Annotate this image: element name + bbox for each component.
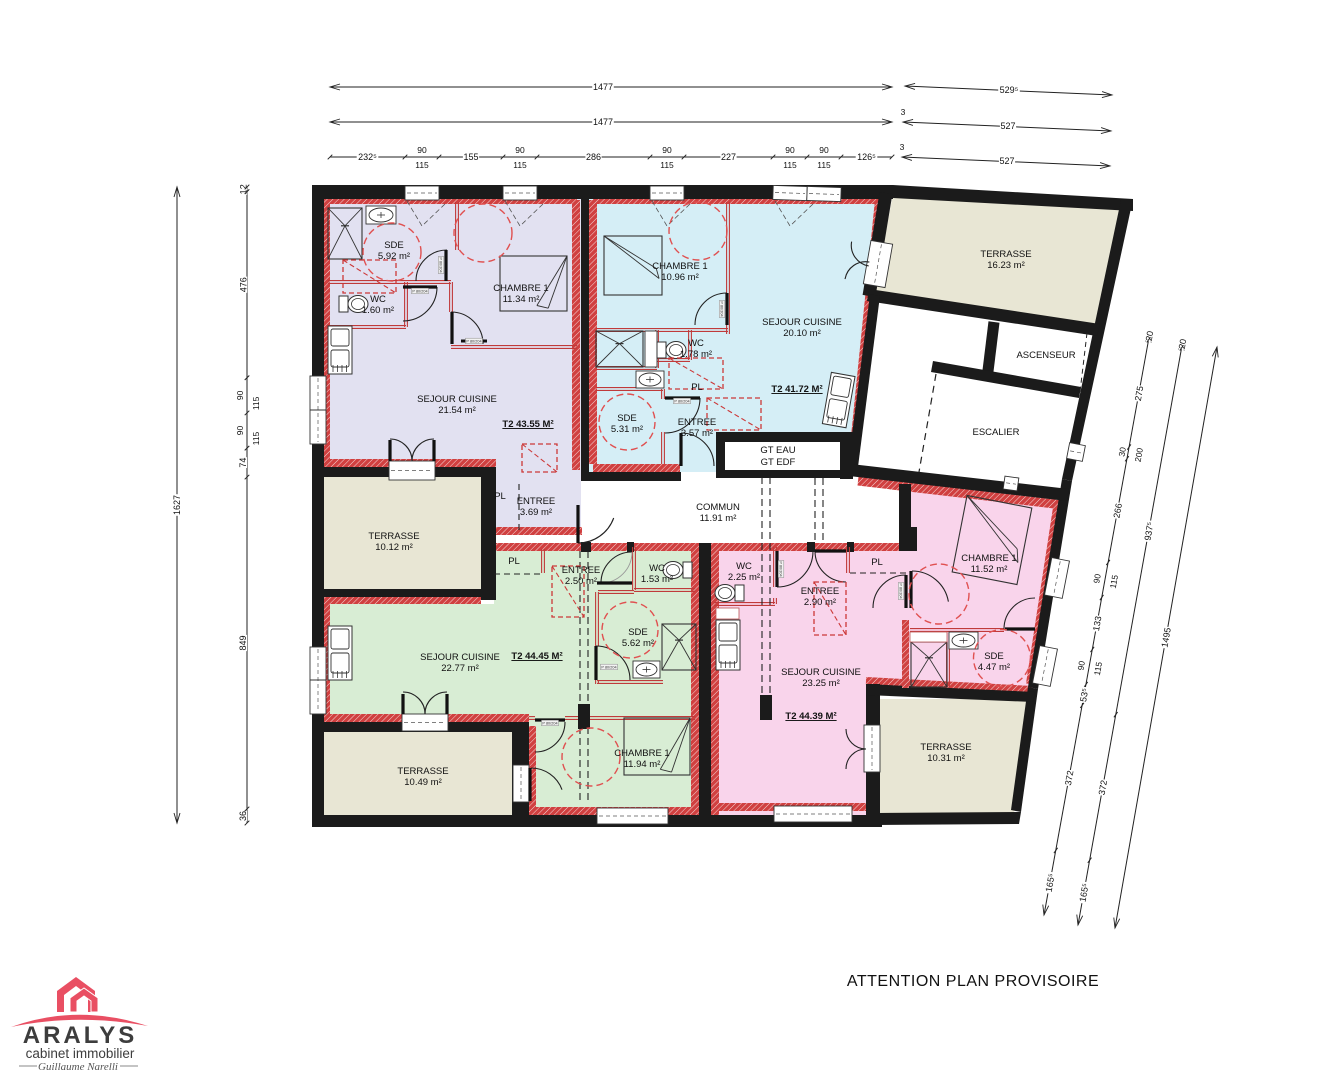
svg-text:1.53 m²: 1.53 m² bbox=[641, 574, 673, 585]
svg-text:TERRASSE: TERRASSE bbox=[920, 742, 971, 753]
svg-text:23.25 m²: 23.25 m² bbox=[802, 678, 840, 689]
svg-text:CHAMBRE 1: CHAMBRE 1 bbox=[493, 283, 548, 294]
svg-text:T2 43.55 M²: T2 43.55 M² bbox=[502, 419, 553, 430]
svg-text:GT EDF: GT EDF bbox=[761, 457, 796, 468]
svg-text:90: 90 bbox=[785, 145, 795, 155]
svg-text:T2 41.72 M²: T2 41.72 M² bbox=[771, 384, 822, 395]
svg-text:227: 227 bbox=[721, 152, 736, 162]
svg-text:90: 90 bbox=[235, 390, 245, 400]
svg-text:21.54 m²: 21.54 m² bbox=[438, 405, 476, 416]
svg-text:Guillaume Narelli: Guillaume Narelli bbox=[38, 1061, 118, 1073]
svg-text:CHAMBRE 1: CHAMBRE 1 bbox=[614, 748, 669, 759]
svg-text:16.23 m²: 16.23 m² bbox=[987, 260, 1025, 271]
svg-text:5.92 m²: 5.92 m² bbox=[378, 251, 410, 262]
svg-text:P 80/204: P 80/204 bbox=[601, 665, 616, 669]
svg-text:30: 30 bbox=[1116, 446, 1128, 457]
svg-text:20: 20 bbox=[1144, 330, 1156, 342]
svg-text:12: 12 bbox=[238, 184, 248, 194]
svg-text:TERRASSE: TERRASSE bbox=[980, 249, 1031, 260]
svg-text:20.10 m²: 20.10 m² bbox=[783, 328, 821, 339]
svg-text:P 80/204: P 80/204 bbox=[439, 257, 443, 272]
svg-text:3.69 m²: 3.69 m² bbox=[520, 507, 552, 518]
svg-text:90: 90 bbox=[1091, 573, 1103, 584]
svg-text:286: 286 bbox=[586, 152, 601, 162]
svg-text:2.90 m²: 2.90 m² bbox=[804, 597, 836, 608]
svg-text:ARALYS: ARALYS bbox=[23, 1022, 137, 1049]
svg-text:PL: PL bbox=[871, 557, 883, 568]
svg-text:3: 3 bbox=[900, 142, 905, 152]
svg-text:ENTREE: ENTREE bbox=[678, 417, 717, 428]
svg-text:SDE: SDE bbox=[984, 651, 1004, 662]
svg-text:SDE: SDE bbox=[628, 627, 648, 638]
svg-text:ENTREE: ENTREE bbox=[801, 586, 840, 597]
svg-text:SEJOUR CUISINE: SEJOUR CUISINE bbox=[417, 394, 497, 405]
svg-text:529⁵: 529⁵ bbox=[1000, 85, 1019, 95]
svg-text:11.52 m²: 11.52 m² bbox=[971, 564, 1008, 575]
svg-text:74: 74 bbox=[238, 458, 248, 468]
svg-text:P 80/204: P 80/204 bbox=[779, 561, 783, 576]
svg-text:T2 44.45 M²: T2 44.45 M² bbox=[511, 651, 562, 662]
svg-text:90: 90 bbox=[1075, 660, 1087, 671]
svg-text:SDE: SDE bbox=[384, 240, 404, 251]
svg-text:10.12 m²: 10.12 m² bbox=[375, 542, 413, 553]
svg-text:90: 90 bbox=[662, 145, 672, 155]
svg-text:GT EAU: GT EAU bbox=[760, 445, 795, 456]
svg-text:527: 527 bbox=[1000, 121, 1015, 131]
svg-text:849: 849 bbox=[238, 635, 248, 650]
svg-text:3.57 m²: 3.57 m² bbox=[681, 428, 713, 439]
svg-text:11.91 m²: 11.91 m² bbox=[700, 513, 737, 524]
svg-text:90: 90 bbox=[819, 145, 829, 155]
svg-text:ESCALIER: ESCALIER bbox=[973, 427, 1020, 438]
svg-text:TERRASSE: TERRASSE bbox=[397, 766, 448, 777]
svg-text:10.96 m²: 10.96 m² bbox=[661, 272, 699, 283]
svg-text:2.50 m²: 2.50 m² bbox=[565, 576, 597, 587]
svg-text:126⁵: 126⁵ bbox=[857, 152, 876, 162]
svg-text:P 80/204: P 80/204 bbox=[542, 721, 557, 725]
svg-text:WC: WC bbox=[736, 561, 752, 572]
svg-text:P 80/204: P 80/204 bbox=[720, 301, 724, 316]
svg-text:20: 20 bbox=[1177, 338, 1189, 350]
svg-text:cabinet immobilier: cabinet immobilier bbox=[26, 1046, 135, 1061]
svg-text:1477: 1477 bbox=[593, 82, 613, 92]
svg-text:PL: PL bbox=[508, 556, 520, 567]
svg-text:P 80/204: P 80/204 bbox=[466, 339, 481, 343]
svg-text:P 80/204: P 80/204 bbox=[412, 289, 427, 293]
svg-text:476: 476 bbox=[238, 277, 248, 292]
svg-text:36: 36 bbox=[238, 811, 248, 821]
svg-text:WC: WC bbox=[370, 294, 386, 305]
svg-text:2.25 m²: 2.25 m² bbox=[728, 572, 760, 583]
svg-text:WC: WC bbox=[688, 338, 704, 349]
svg-text:TERRASSE: TERRASSE bbox=[368, 531, 419, 542]
svg-text:WC: WC bbox=[649, 563, 665, 574]
svg-text:SEJOUR CUISINE: SEJOUR CUISINE bbox=[781, 667, 861, 678]
svg-text:10.31 m²: 10.31 m² bbox=[927, 753, 965, 764]
svg-text:COMMUN: COMMUN bbox=[696, 502, 740, 513]
svg-text:115: 115 bbox=[415, 160, 429, 170]
svg-text:115: 115 bbox=[817, 160, 831, 170]
svg-text:SDE: SDE bbox=[617, 413, 637, 424]
svg-text:1.78 m²: 1.78 m² bbox=[680, 349, 712, 360]
svg-text:1627: 1627 bbox=[172, 495, 182, 515]
svg-text:90: 90 bbox=[235, 426, 245, 436]
svg-text:115: 115 bbox=[513, 160, 527, 170]
svg-text:CHAMBRE 1: CHAMBRE 1 bbox=[652, 261, 707, 272]
svg-text:5.62 m²: 5.62 m² bbox=[622, 638, 654, 649]
svg-text:527: 527 bbox=[999, 156, 1014, 166]
svg-text:115: 115 bbox=[251, 396, 261, 410]
svg-text:P 80/204: P 80/204 bbox=[899, 583, 903, 598]
svg-text:5.31 m²: 5.31 m² bbox=[611, 424, 643, 435]
svg-text:115: 115 bbox=[660, 160, 674, 170]
svg-text:ATTENTION PLAN PROVISOIRE: ATTENTION PLAN PROVISOIRE bbox=[847, 973, 1099, 990]
svg-text:T2 44.39 M²: T2 44.39 M² bbox=[785, 711, 836, 722]
svg-text:4.47 m²: 4.47 m² bbox=[978, 662, 1010, 673]
svg-text:CHAMBRE 1: CHAMBRE 1 bbox=[961, 553, 1016, 564]
svg-text:SEJOUR CUISINE: SEJOUR CUISINE bbox=[762, 317, 842, 328]
svg-text:22.77 m²: 22.77 m² bbox=[441, 663, 479, 674]
svg-text:3: 3 bbox=[901, 107, 906, 117]
svg-text:90: 90 bbox=[417, 145, 427, 155]
svg-text:1.60 m²: 1.60 m² bbox=[362, 305, 394, 316]
svg-text:PL: PL bbox=[494, 491, 506, 502]
svg-text:115: 115 bbox=[783, 160, 797, 170]
svg-text:PL: PL bbox=[691, 382, 703, 393]
svg-text:155: 155 bbox=[463, 152, 478, 162]
svg-text:SEJOUR CUISINE: SEJOUR CUISINE bbox=[420, 652, 500, 663]
svg-text:P 80/204: P 80/204 bbox=[674, 399, 689, 403]
svg-text:ENTREE: ENTREE bbox=[562, 565, 601, 576]
svg-text:115: 115 bbox=[251, 431, 261, 445]
svg-text:11.34 m²: 11.34 m² bbox=[503, 294, 540, 305]
svg-text:11.94 m²: 11.94 m² bbox=[624, 759, 661, 770]
svg-text:10.49 m²: 10.49 m² bbox=[404, 777, 442, 788]
svg-text:90: 90 bbox=[515, 145, 525, 155]
svg-text:232⁵: 232⁵ bbox=[358, 152, 377, 162]
svg-text:ENTREE: ENTREE bbox=[517, 496, 556, 507]
svg-text:ASCENSEUR: ASCENSEUR bbox=[1016, 350, 1075, 361]
svg-text:1477: 1477 bbox=[593, 117, 613, 127]
